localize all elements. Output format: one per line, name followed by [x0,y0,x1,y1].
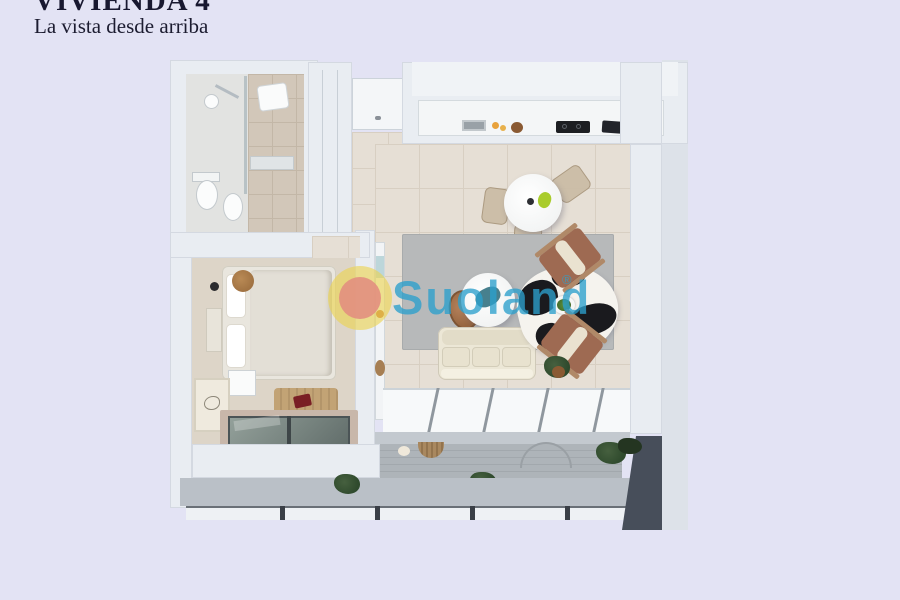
wall-lamp [210,282,219,291]
lower-terrace-deck [380,444,622,480]
railing-post [470,506,475,520]
entry-door-handle [375,116,381,120]
railing-post [375,506,380,520]
wall-right-interior [630,144,662,434]
duvet [250,270,332,376]
wall-bottom [192,444,380,478]
fruit [500,125,506,131]
glass-railing [186,506,652,520]
sofa-seat-cushion [502,347,531,367]
pendant-lamp [232,270,254,292]
wardrobe-door-seam [322,70,323,250]
vanity-sink [250,156,294,170]
sofa-seat-cushion [472,347,500,367]
bedroom-door-opening [312,236,360,258]
kitchen-sink [462,120,486,131]
shower-head [204,94,219,109]
railing-post [565,506,570,520]
watermark-logo-dot [339,277,381,319]
fruit [492,122,499,129]
deck-ornament [398,446,410,456]
terrace-plant [334,474,360,494]
railing-post [280,506,285,520]
sofa-seat-cushion [442,347,470,367]
wardrobe [308,62,352,258]
cup [527,198,534,205]
nightstand-shelf [206,308,222,352]
terrace-plant [618,438,642,454]
shelf-basket [375,360,385,376]
cooktop-burner [562,124,567,129]
terrace-walkway [180,478,662,506]
bowl [511,122,523,133]
towels [256,82,289,112]
watermark-registered-icon: ® [562,272,572,287]
bidet [223,193,243,221]
page-subtitle: La vista desde arriba [34,14,208,39]
sofa [438,327,536,380]
cooktop-burner [576,124,581,129]
shower-glass-panel [244,76,247,194]
toilet [196,180,218,210]
pillow [226,324,246,368]
kitchen-tall-unit [620,62,662,144]
wardrobe-door-seam [337,70,338,250]
entry-door [352,78,404,130]
bedroom-cabinet [228,370,256,396]
terrace-door-track [375,432,630,444]
sofa-back [441,369,533,378]
plant-pot [552,366,565,378]
wall-bedroom-living [355,230,375,448]
sofa-pillows [442,330,532,345]
